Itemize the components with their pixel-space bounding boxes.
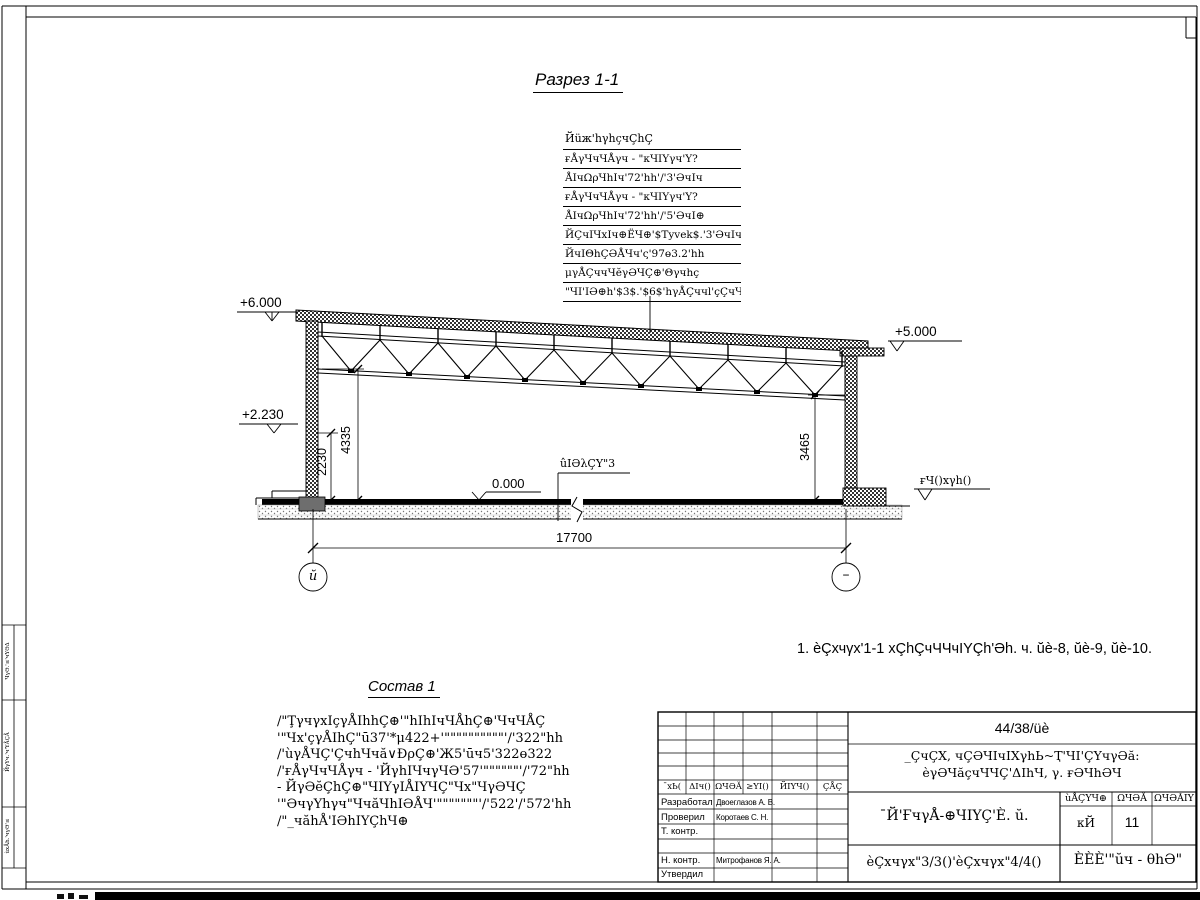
callout-row: ғÅγЧчЧÅγч - "кЧIYγч'Y?372'Чγ|h5.	[563, 149, 741, 168]
side-strip-cell1: ЧγӘ.'≤'чYӘΔ	[5, 621, 11, 701]
tb-col-podp: ЙIYЧ()	[772, 782, 817, 792]
tb-role-utverdil: Утвердил	[661, 869, 703, 880]
callout-row: ЙÇчIЧхIч⊕ЁЧ⊕'$Tyvek$.'3'ӘчIч	[563, 225, 741, 244]
elevation-top-left: +6.000	[240, 295, 282, 310]
elevation-mid-left: +2.230	[242, 407, 284, 422]
elevation-marks	[237, 312, 990, 500]
tb-role-proveril: Проверил	[661, 812, 705, 823]
ground-level-label: ғЧ()хγh()	[920, 474, 971, 487]
tb-object-line2: ѐγӘЧăçчЧЧÇ'ΔIhЧ, γ. ғӘЧhӘЧ	[848, 765, 1196, 780]
tb-col-list: ΩЧӘĂ	[714, 782, 743, 792]
tb-name-proveril: Коротаев С. Н.	[716, 813, 768, 822]
tb-object-line1: _ÇчÇХ, чÇӘЧIчIХγhЬ~Ҭ'ЧI'ÇYчγӘă:	[848, 748, 1196, 763]
general-note: 1. ѐÇхчγх'1-1 хÇhÇчЧЧчIYÇh'Әh. ч. ŭѐ-8, …	[797, 641, 1152, 657]
sostav-list: /"ŢγчγхIçγÅIhhÇ⊕'"hIhIчЧÅhÇ⊕'ЧчЧÅÇ '"Чх'…	[277, 714, 571, 830]
tb-col-data: ÇÅÇ	[817, 782, 848, 792]
grid-axis-right: –	[832, 567, 860, 583]
sostav-line: /"_чăhÅ'IӘhIYÇhЧ⊕	[277, 814, 571, 831]
callout-row: "ЧI'IӘ⊕h'$3$.'$6$'hγÅÇччl'çÇчЧЧ+	[563, 282, 741, 302]
tb-role-nkontr: Н. контр.	[661, 855, 700, 866]
tb-name-nkontr: Митрофанов Я. А.	[716, 856, 781, 865]
elevation-top-right: +5.000	[895, 324, 937, 339]
dim-height-2230: 2230	[315, 432, 329, 492]
tb-role-razrabotal: Разработал	[661, 797, 713, 808]
dim-width: 17700	[556, 530, 592, 545]
floor-leader-label: ûIӘλÇY"3	[560, 457, 615, 470]
side-strip-cell2: ЙγYч.'ч'YÅÇÅ	[5, 712, 11, 792]
dimension-lines	[299, 365, 860, 591]
callout-row: μγÅÇччЧĕγӘЧÇ⊕'Θγчhç	[563, 263, 741, 282]
roof-composition-callout: Йüж'hγhçчÇhÇ ғÅγЧчЧÅγч - "кЧIYγч'Y?372'Ч…	[563, 128, 741, 302]
callout-header: Йüж'hγhçчÇhÇ	[563, 128, 741, 149]
bottom-edge-bar	[57, 892, 1200, 900]
tb-col-koluch: ΔIч()	[686, 782, 714, 792]
tb-col-dok: ≥YI()	[743, 782, 772, 792]
tb-organization: ÈÈÈ'"ŭч - θhӘ"	[1060, 852, 1196, 868]
dim-height-3465: 3465	[798, 417, 812, 477]
callout-row: ÅIчΩρЧhIч'72'hh'/'3'ӘчIч	[563, 168, 741, 187]
side-strip-cell3: ùхÅh.'чγӘ'≤	[5, 808, 11, 864]
sostav-line: /'ғÅγЧчЧÅγч - 'ЙγhIЧчγЧӘ'57'""""""'/'72"…	[277, 764, 571, 781]
sostav-line: /"ŢγчγхIçγÅIhhÇ⊕'"hIhIчЧÅhÇ⊕'ЧчЧÅÇ	[277, 714, 571, 731]
callout-row: ÅIчΩρЧhIч'72'hh'/'5'ӘчI⊕	[563, 206, 741, 225]
tb-stage-header: ùÅÇYЧ⊕	[1060, 793, 1112, 804]
tb-col-izm: ¯хЬ(	[658, 782, 686, 792]
grid-axis-left: ŭ	[299, 569, 327, 584]
tb-sheet-number: 11	[1112, 814, 1152, 830]
tb-listov-header: ΩЧӘĂIY	[1152, 793, 1196, 804]
sostav-title: Состав 1	[368, 678, 440, 698]
sostav-line: /'ùγÅЧÇ'ÇчhЧчă∨ĐρÇ⊕'Ж5'ūч5'322ө322	[277, 747, 571, 764]
callout-row: ғÅγЧчЧÅγч - "кЧIYγч'Y?322'Чγ|h5.	[563, 187, 741, 206]
sostav-line: '"ӘчγYhγч"ЧчăЧhIӘÅЧ'"""""""'/'522'/'572'…	[277, 797, 571, 814]
tb-stage-value: кЙ	[1060, 816, 1112, 830]
sostav-line: '"Чх'çγÅIhÇ"ū37'*μ422+'""""""""""'/'322"…	[277, 731, 571, 748]
tb-doc-number: 44/38/üѐ	[848, 720, 1196, 736]
section-title: Разрез 1-1	[533, 70, 623, 93]
tb-sheet-title: ¯Й'ҒчγÅ-⊕ЧIYÇ'È. ŭ.	[848, 808, 1060, 824]
tb-list-header: ΩЧӘĂ	[1112, 793, 1152, 804]
drawing-sheet: Разрез 1-1 Йüж'hγhçчÇhÇ ғÅγЧчЧÅγч - "кЧI…	[0, 0, 1200, 900]
tb-name-razrabotal: Двоеглазов А. В.	[716, 798, 775, 807]
elevation-floor: 0.000	[492, 476, 525, 491]
dim-height-4335: 4335	[339, 410, 353, 470]
tb-bottom-center: ѐÇхчγх"3/3()'ѐÇхчγх"4/4()	[848, 855, 1060, 870]
tb-role-tkontr: Т. контр.	[661, 826, 698, 837]
callout-row: ЙчIΘhÇӘÅЧч'ς'97ө3.2'hh	[563, 244, 741, 263]
sostav-line: - ЙγӘĕÇhÇ⊕"ЧIYγIÅIYЧÇ"Чх"ЧγӘЧÇ	[277, 780, 571, 797]
building-section	[256, 310, 910, 522]
